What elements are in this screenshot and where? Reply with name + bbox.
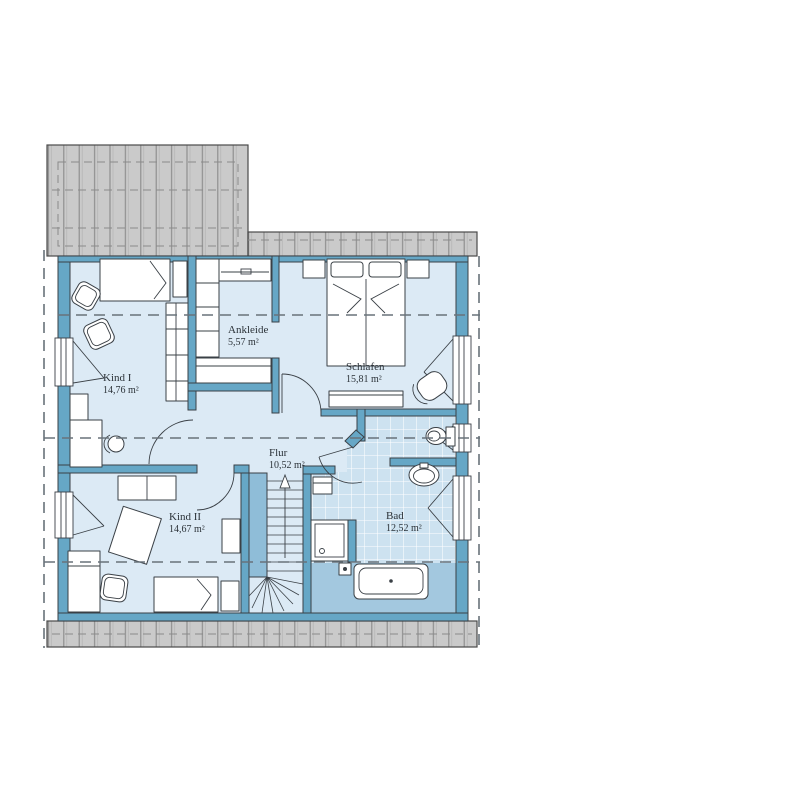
wardrobe-kind1 (166, 303, 188, 401)
bathtub (354, 564, 428, 599)
beanbag-kind2 (99, 573, 128, 602)
label-bad-name: Bad (386, 510, 404, 522)
wall-stair-east-stub (303, 466, 335, 474)
desk-kind1 (70, 420, 102, 467)
wall-ankleide-schlafen-lower (272, 358, 279, 413)
label-schlafen-name: Schlafen (346, 361, 385, 373)
nightstand-schlafen-left (303, 260, 325, 278)
double-bed-schlafen (327, 259, 405, 366)
sideboard-schlafen (329, 391, 403, 407)
nightstand-schlafen-right (407, 260, 429, 278)
bed-kind1 (100, 259, 170, 301)
label-ankleide-area: 5,57 m² (228, 337, 259, 348)
nightstand-kind1 (173, 261, 187, 297)
floor-drain (339, 563, 351, 575)
label-kind2-area: 14,67 m² (169, 524, 205, 535)
wall-shower-stub (348, 520, 356, 562)
dresser-ankleide (196, 358, 271, 383)
label-ankleide-name: Ankleide (228, 324, 268, 336)
shelf-kind2-east (222, 519, 240, 553)
label-flur-name: Flur (269, 447, 288, 459)
label-flur-area: 10,52 m² (269, 460, 305, 471)
floor-plan-svg: Kind I 14,76 m² Ankleide 5,57 m² Schlafe… (0, 0, 800, 800)
label-schlafen-area: 15,81 m² (346, 374, 382, 385)
wall-ankleide-south (188, 383, 274, 391)
closet-ankleide-left (196, 259, 219, 357)
wall-schlafen-south (321, 409, 456, 416)
label-kind2-name: Kind II (169, 511, 201, 523)
shower (311, 520, 348, 561)
desk-kind2 (68, 551, 100, 612)
label-kind1-name: Kind I (103, 372, 132, 384)
toilet (426, 427, 455, 446)
bed-kind2 (154, 577, 218, 612)
floor-plan-page: Kind I 14,76 m² Ankleide 5,57 m² Schlafe… (0, 0, 800, 800)
wall-kind2-north-stub (234, 465, 249, 473)
wall-ankleide-schlafen-upper (272, 256, 279, 322)
sideboard-kind2 (118, 476, 176, 500)
label-kind1-area: 14,76 m² (103, 385, 139, 396)
nightstand-kind2 (221, 581, 239, 611)
roof-hatch-top-strip (248, 232, 477, 256)
wall-stair-west (241, 465, 249, 613)
outer-wall-bottom (58, 613, 468, 621)
shelf-flur (313, 477, 332, 494)
wall-stair-east (303, 470, 311, 613)
cabinet-kind1 (70, 394, 88, 420)
closet-ankleide-top (219, 259, 271, 281)
room-flur-furniture (313, 477, 332, 494)
label-bad-area: 12,52 m² (386, 523, 422, 534)
